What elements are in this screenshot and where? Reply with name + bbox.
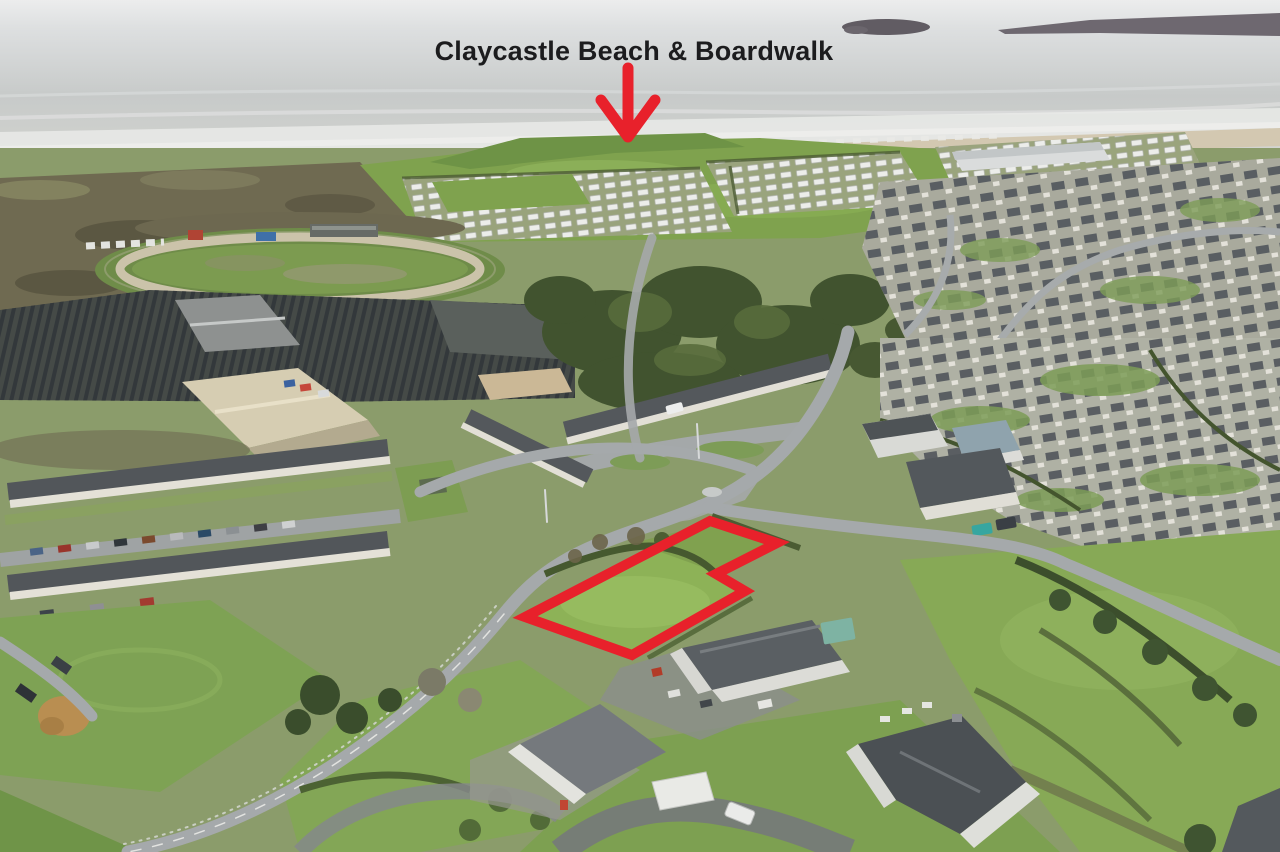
- grandstand: [310, 224, 378, 237]
- aerial-photo-scene: [0, 0, 1280, 852]
- housing-estate-top-right: [862, 158, 1280, 340]
- aerial-photo-claycastle: Claycastle Beach & Boardwalk: [0, 0, 1280, 852]
- annotation-label: Claycastle Beach & Boardwalk: [435, 36, 834, 67]
